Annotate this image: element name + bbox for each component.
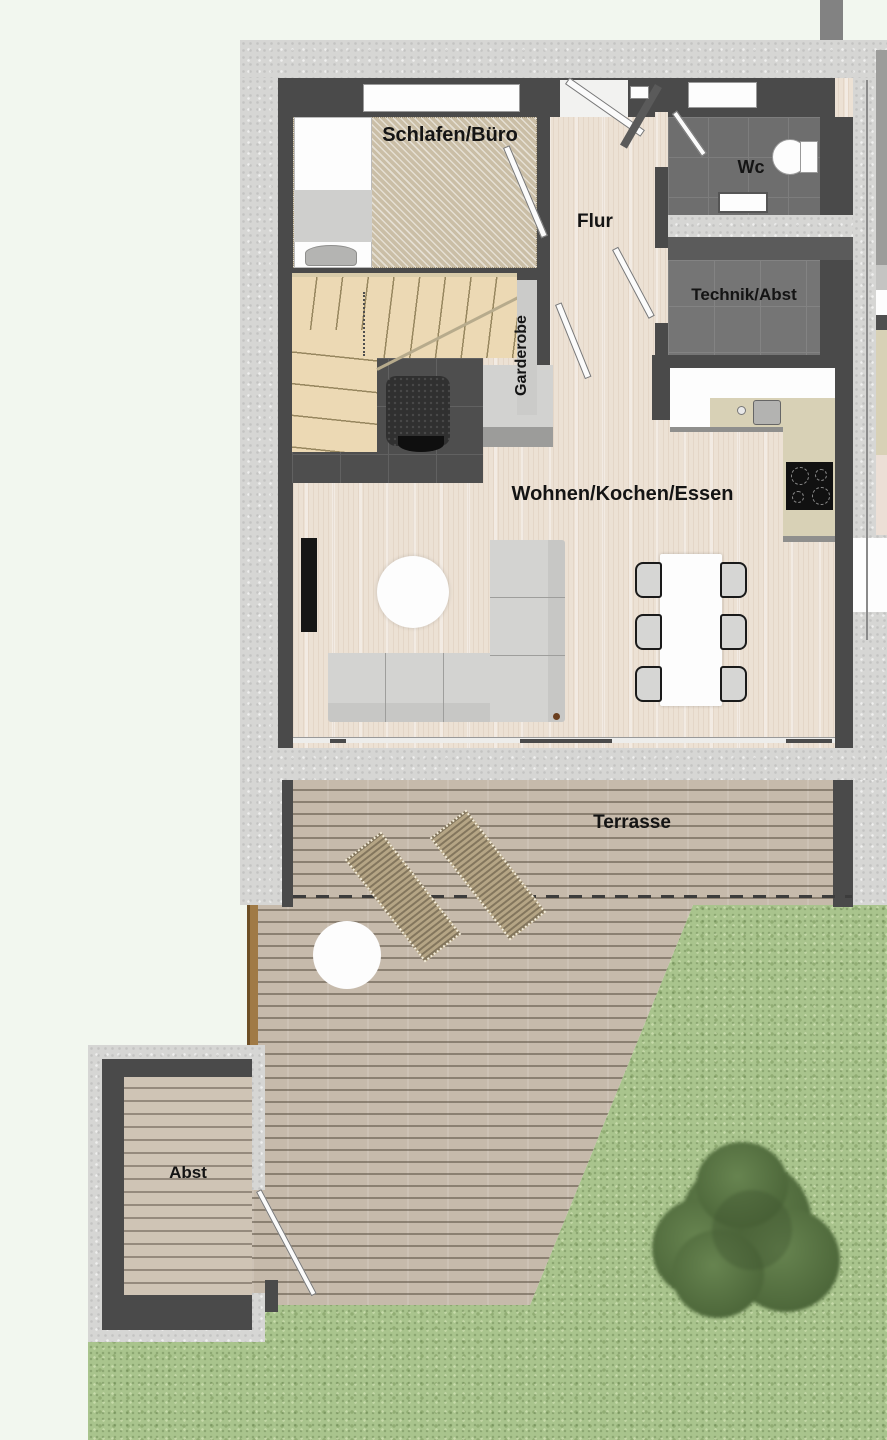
doorway-wc <box>655 112 668 167</box>
dining-chair <box>635 666 662 702</box>
neighbour-strip <box>876 290 887 315</box>
wall-technik-right <box>820 260 853 368</box>
sofa-divider <box>443 653 444 722</box>
entrance-step <box>630 86 649 99</box>
wc-sink <box>718 192 768 213</box>
dining-chair <box>720 562 747 598</box>
glass-frame-tick <box>786 739 832 743</box>
terrace-wall-right <box>833 780 853 907</box>
window-dining <box>853 538 887 612</box>
dining-chair <box>720 666 747 702</box>
neighbour-strip <box>876 455 887 535</box>
kitchen-counter-shadow <box>670 427 783 432</box>
toilet-tank <box>800 141 818 173</box>
room-label-terrasse: Terrasse <box>558 813 706 834</box>
sofa-divider <box>490 597 565 598</box>
cooktop-burner <box>812 487 830 505</box>
neighbour-strip <box>876 265 887 290</box>
garden-fence <box>247 905 258 1047</box>
room-label-wc: Wc <box>711 158 791 178</box>
bed-stool <box>305 245 357 266</box>
doorway-technik <box>655 248 668 323</box>
tv <box>301 538 317 632</box>
shed-corner-stub <box>265 1280 278 1312</box>
armchair-base <box>398 436 444 452</box>
dining-chair <box>635 614 662 650</box>
terrace-side-table <box>313 921 381 989</box>
room-label-garderobe: Garderobe <box>513 296 531 416</box>
neighbour-strip <box>876 50 887 265</box>
sofa-divider <box>490 655 565 656</box>
bed-blanket <box>294 190 372 242</box>
dining-chair <box>720 614 747 650</box>
room-label-schlafen: Schlafen/Büro <box>345 124 555 146</box>
room-label-technik: Technik/Abst <box>668 286 820 305</box>
cooktop-burner <box>791 467 809 485</box>
cooktop-burner <box>815 469 827 481</box>
kitchen-counter-side-shadow <box>783 536 835 542</box>
shed-floor <box>124 1077 252 1295</box>
room-label-abst: Abst <box>124 1164 252 1183</box>
wall-right-lower <box>835 368 853 748</box>
wall-technik-corner <box>652 355 670 420</box>
room-label-wohnen: Wohnen/Kochen/Essen <box>510 483 735 505</box>
understair-shadow <box>483 427 553 447</box>
wall-wc-right <box>820 117 853 215</box>
kitchen-cabinet-end <box>670 398 710 427</box>
party-wall-stub <box>820 0 843 40</box>
wall-technik-top <box>668 237 853 260</box>
outer-wall-bottom <box>240 748 887 780</box>
neighbour-strip <box>876 330 887 455</box>
plant-pot <box>553 713 560 720</box>
wall-wc-technik <box>668 215 853 237</box>
sofa-right-cushions <box>490 540 548 722</box>
party-wall-line <box>866 80 868 640</box>
kitchen-sink <box>753 400 781 425</box>
outer-wall-left <box>240 78 282 905</box>
round-rug <box>377 556 449 628</box>
window-bedroom <box>363 84 520 112</box>
floor-plan: Schlafen/Büro Flur Wc Technik/Abst Garde… <box>0 0 887 1440</box>
wall-technik-bottom <box>652 355 853 368</box>
neighbour-strip <box>876 315 887 330</box>
dining-chair <box>635 562 662 598</box>
stairs-walkline <box>363 292 365 356</box>
tree <box>650 1140 845 1325</box>
sofa-divider <box>385 653 386 722</box>
dining-table <box>660 554 722 706</box>
wall-left <box>278 78 293 748</box>
wall-bed-flur <box>537 78 550 268</box>
room-technik-floor <box>668 260 820 355</box>
glass-frame-tick <box>330 739 346 743</box>
outer-wall-top <box>240 40 887 78</box>
kitchen-tall-cabinets <box>670 368 835 398</box>
cooktop-burner <box>792 491 804 503</box>
glass-frame-tick <box>520 739 612 743</box>
terrace-wall-left <box>282 780 293 907</box>
kitchen-faucet <box>737 406 746 415</box>
window-wc <box>688 82 757 108</box>
room-label-flur: Flur <box>565 212 625 233</box>
sofa-bottom-cushions <box>328 653 502 703</box>
